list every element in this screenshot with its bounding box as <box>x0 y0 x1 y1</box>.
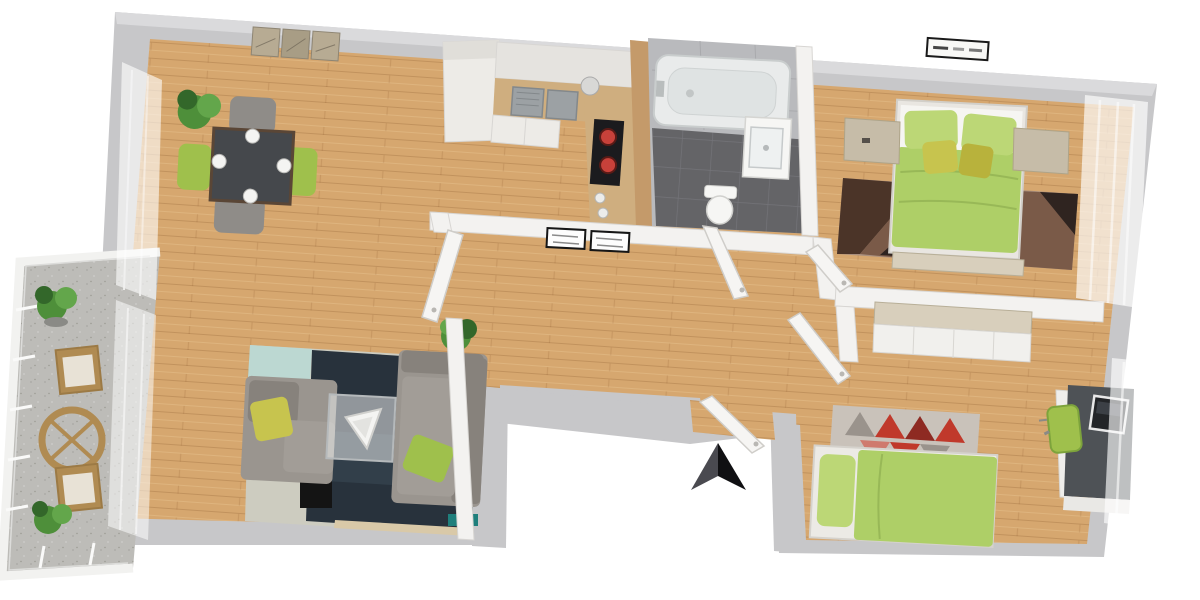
cushion-right <box>958 143 995 180</box>
bed2-duvet <box>854 450 998 547</box>
double-bed <box>889 100 1027 260</box>
burner <box>600 157 617 174</box>
wall-art-triptych <box>251 27 340 61</box>
washbasin-cabinet <box>742 117 791 179</box>
tub-faucet <box>656 81 665 97</box>
nightstand-right <box>1013 128 1069 174</box>
control-knob <box>598 208 608 218</box>
dining-chair-left <box>177 143 212 191</box>
cushion-left <box>922 140 959 175</box>
balcony-chair-top <box>56 346 102 394</box>
burner <box>600 128 617 145</box>
cooktop <box>590 119 624 186</box>
yellow-pillow <box>249 396 294 443</box>
wardrobe <box>873 302 1032 362</box>
north-arrow-right <box>718 443 746 490</box>
bedroom2-left-wall <box>836 306 858 362</box>
control-knob <box>595 193 605 203</box>
nightstand-left <box>844 118 900 164</box>
sofa-right <box>391 350 488 507</box>
floor-plan-canvas <box>0 0 1200 600</box>
single-bed <box>810 445 998 546</box>
north-arrow-left <box>691 443 718 490</box>
tall-cabinet-top <box>443 40 500 60</box>
armchair-left <box>240 376 337 485</box>
bed2-pillow <box>816 454 856 528</box>
bedroom1-curtains <box>1076 95 1148 308</box>
nightstand-handle <box>862 138 870 143</box>
faucet <box>581 77 599 95</box>
floor-plan-render <box>0 0 1200 600</box>
bedroom2-curtains <box>1104 358 1152 528</box>
north-arrow <box>691 443 746 490</box>
vent-panel <box>927 38 989 60</box>
coffee-table <box>326 394 395 461</box>
bathroom <box>648 38 814 234</box>
